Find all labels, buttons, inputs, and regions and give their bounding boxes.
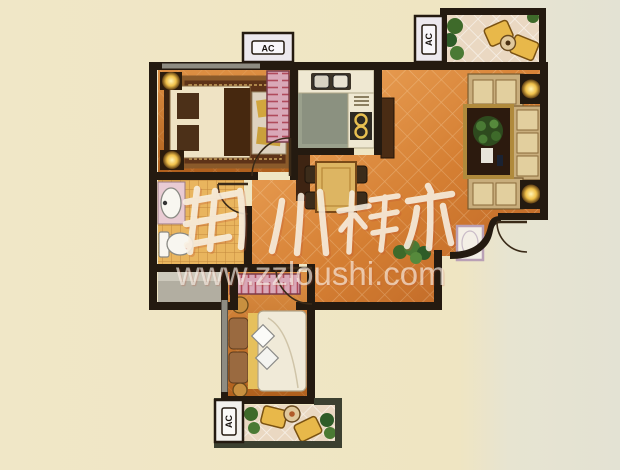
wardrobe-master	[267, 71, 289, 142]
floor-plan-page: AC AC AC www.zzloushi.com 郑州楼市	[0, 0, 620, 470]
floor-plan-drawing: AC AC AC	[0, 0, 620, 470]
master-bedroom-furniture	[160, 71, 289, 170]
window-band-second	[222, 300, 228, 392]
ac-unit-bottom: AC	[215, 400, 243, 442]
ac-label-right: AC	[424, 33, 434, 46]
ac-label-top: AC	[262, 44, 275, 54]
ac-unit-right: AC	[415, 16, 443, 62]
ac-unit-top: AC	[243, 33, 293, 62]
ac-label-bottom: AC	[224, 415, 234, 428]
coffee-table	[463, 104, 514, 179]
url-watermark: www.zzloushi.com	[176, 255, 486, 293]
window-band-master	[162, 64, 260, 69]
